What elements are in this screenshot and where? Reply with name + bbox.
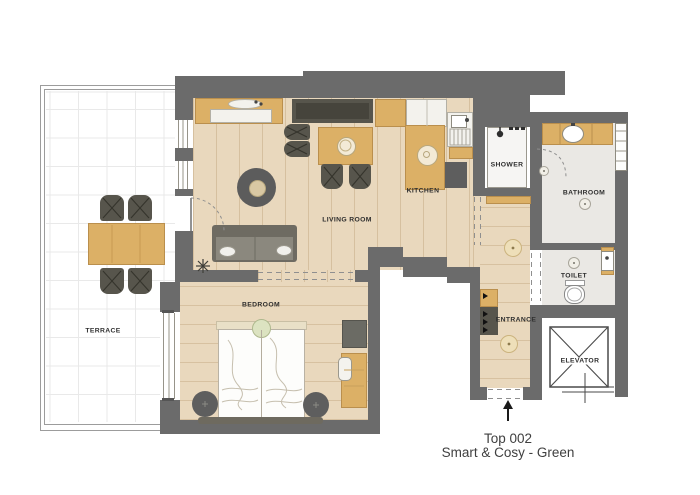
- desk-chair: [338, 357, 352, 381]
- label-kitchen: KITCHEN: [407, 188, 440, 195]
- plan-caption: Top 002 Smart & Cosy - Green: [408, 432, 608, 460]
- bed-green-pillow: [252, 319, 271, 338]
- wall-top-left: [175, 76, 303, 98]
- tall-cabinet: [375, 99, 406, 127]
- wall-top-stub: [485, 71, 565, 95]
- wall-entrance-left: [470, 277, 480, 400]
- living-bedroom-opening-floor: [258, 270, 355, 282]
- label-living-room: LIVING ROOM: [322, 217, 372, 224]
- wall-shower-bottom: [475, 188, 538, 196]
- shower-floor: [487, 127, 527, 188]
- label-toilet: TOILET: [561, 273, 587, 280]
- living-window-2: [175, 161, 193, 189]
- bedside-stool: [303, 392, 329, 418]
- living-window-1: [175, 120, 193, 148]
- wall-bedroom-right: [368, 247, 380, 434]
- wall-step-b: [403, 257, 447, 277]
- kitchen-appliance: [445, 162, 467, 188]
- bedroom-window: [160, 312, 180, 400]
- towel-radiator: [615, 123, 627, 171]
- round-rug-center: [249, 180, 266, 197]
- decor-dish: [228, 99, 262, 109]
- vanity-sink: [562, 125, 584, 143]
- caption-unit-number: Top 002: [408, 432, 608, 446]
- terrace-chair: [128, 195, 152, 221]
- label-entrance: ENTRANCE: [496, 317, 537, 324]
- entrance-door-opening: [487, 388, 523, 400]
- wall-entrance-bottom-left: [470, 387, 487, 400]
- dining-chair: [284, 141, 310, 157]
- bedside-stool: [192, 391, 218, 417]
- wall-toilet-elevator: [530, 305, 615, 318]
- wall-living-bedroom: [175, 270, 258, 282]
- wall-entrance-bottom-right: [523, 387, 542, 400]
- island-bowl: [417, 145, 438, 166]
- wall-step-a: [368, 247, 403, 267]
- terrace-chair: [100, 195, 124, 221]
- wall-top-right: [303, 71, 485, 98]
- label-bedroom: BEDROOM: [242, 302, 280, 309]
- dresser: [342, 320, 367, 348]
- toilet-hand-sink: [601, 251, 614, 271]
- sofa-pillow: [219, 246, 236, 257]
- bed-runner-rug: [198, 417, 323, 424]
- terrace-table: [88, 223, 165, 265]
- kitchen-sink-basin: [451, 115, 467, 128]
- label-terrace: TERRACE: [85, 328, 120, 335]
- terrace-door-opening: [175, 196, 193, 231]
- label-elevator: ELEVATOR: [560, 358, 601, 365]
- wall-elevator-left: [530, 318, 542, 398]
- kitchen-counter: [406, 99, 447, 127]
- hall-shelf: [486, 196, 531, 204]
- table-plate: [337, 137, 356, 156]
- dining-chair: [284, 124, 310, 140]
- wall-shower-bathroom: [530, 112, 542, 250]
- wall-stub-opening-right: [355, 270, 368, 282]
- dining-chair: [349, 164, 371, 189]
- living-corridor-passage-floor: [473, 196, 480, 267]
- toilet-door-opening: [530, 252, 542, 302]
- media-bench-inner: [296, 103, 369, 119]
- double-bed: [218, 329, 305, 418]
- sideboard-inset: [210, 109, 272, 123]
- label-shower: SHOWER: [491, 162, 524, 169]
- wall-shower-top: [485, 95, 530, 127]
- kitchen-base-cabinet: [449, 147, 473, 159]
- terrace-chair: [128, 268, 152, 294]
- wall-bedroom-left-top: [160, 282, 180, 312]
- caption-unit-name: Smart & Cosy - Green: [408, 446, 608, 460]
- sofa-pillow: [276, 245, 292, 256]
- label-bathroom: BATHROOM: [563, 190, 605, 197]
- toilet-bowl: [564, 285, 585, 304]
- dining-chair: [321, 164, 343, 189]
- wall-bathroom-top: [530, 112, 615, 123]
- entrance-arrow-icon: [503, 400, 513, 421]
- floor-plan: TERRACE LIVING ROOM KITCHEN SHOWER BATHR…: [0, 0, 700, 495]
- wardrobe-cabinet: [480, 289, 498, 307]
- wall-kitchen-right: [473, 95, 485, 196]
- terrace-chair: [100, 268, 124, 294]
